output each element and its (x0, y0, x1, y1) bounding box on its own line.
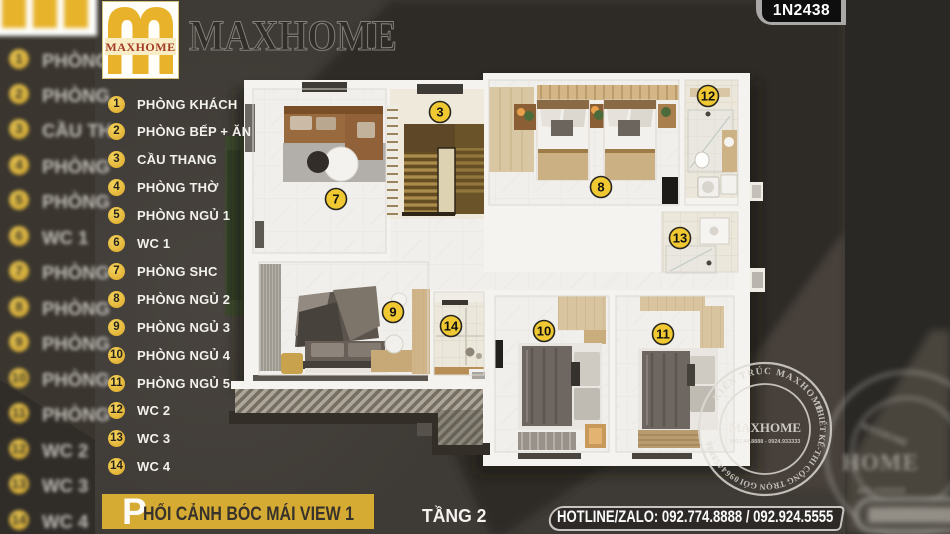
svg-text:10: 10 (537, 324, 551, 339)
svg-text:13: 13 (673, 231, 687, 246)
svg-text:8: 8 (597, 180, 604, 195)
svg-text:MAXHOME: MAXHOME (859, 421, 909, 449)
svg-text:3: 3 (436, 105, 443, 120)
svg-text:9: 9 (389, 305, 396, 320)
svg-text:MAXHOME: MAXHOME (729, 420, 801, 435)
svg-text:033.1333333: 033.1333333 (858, 486, 906, 496)
svg-text:0917.44.8888 - 0924.933333: 0917.44.8888 - 0924.933333 (730, 439, 801, 445)
svg-text:HOME: HOME (842, 450, 919, 475)
svg-text:11: 11 (656, 327, 670, 342)
svg-text:14: 14 (444, 319, 459, 334)
svg-text:MAXHOME: MAXHOME (105, 40, 175, 54)
svg-text:12: 12 (701, 89, 715, 104)
svg-text:7: 7 (332, 192, 339, 207)
